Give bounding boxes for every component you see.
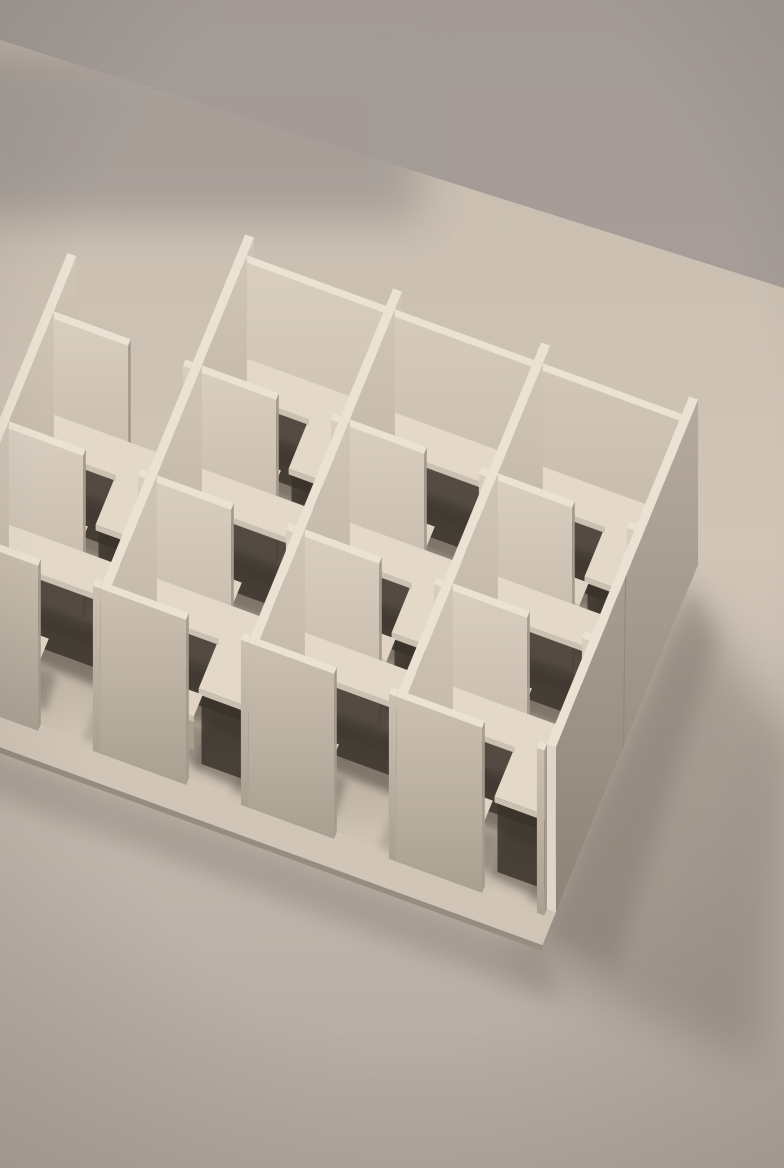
scene (0, 0, 784, 1168)
vignette (0, 0, 784, 1168)
cubicle-model-render (0, 0, 784, 1168)
